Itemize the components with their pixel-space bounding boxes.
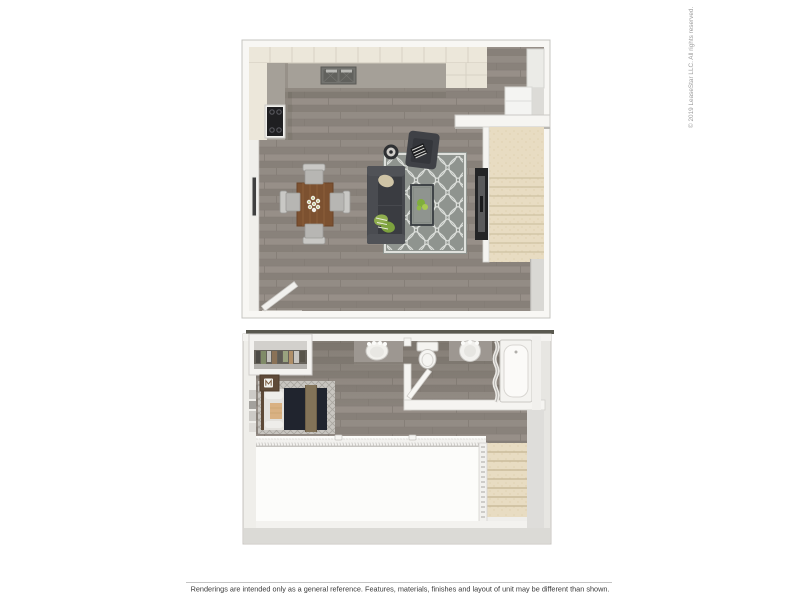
svg-text:Renderings are intended only a: Renderings are intended only as a genera… <box>191 585 610 594</box>
svg-text:© 2019 LeaseStar LLC. All righ: © 2019 LeaseStar LLC. All rights reserve… <box>687 7 695 128</box>
